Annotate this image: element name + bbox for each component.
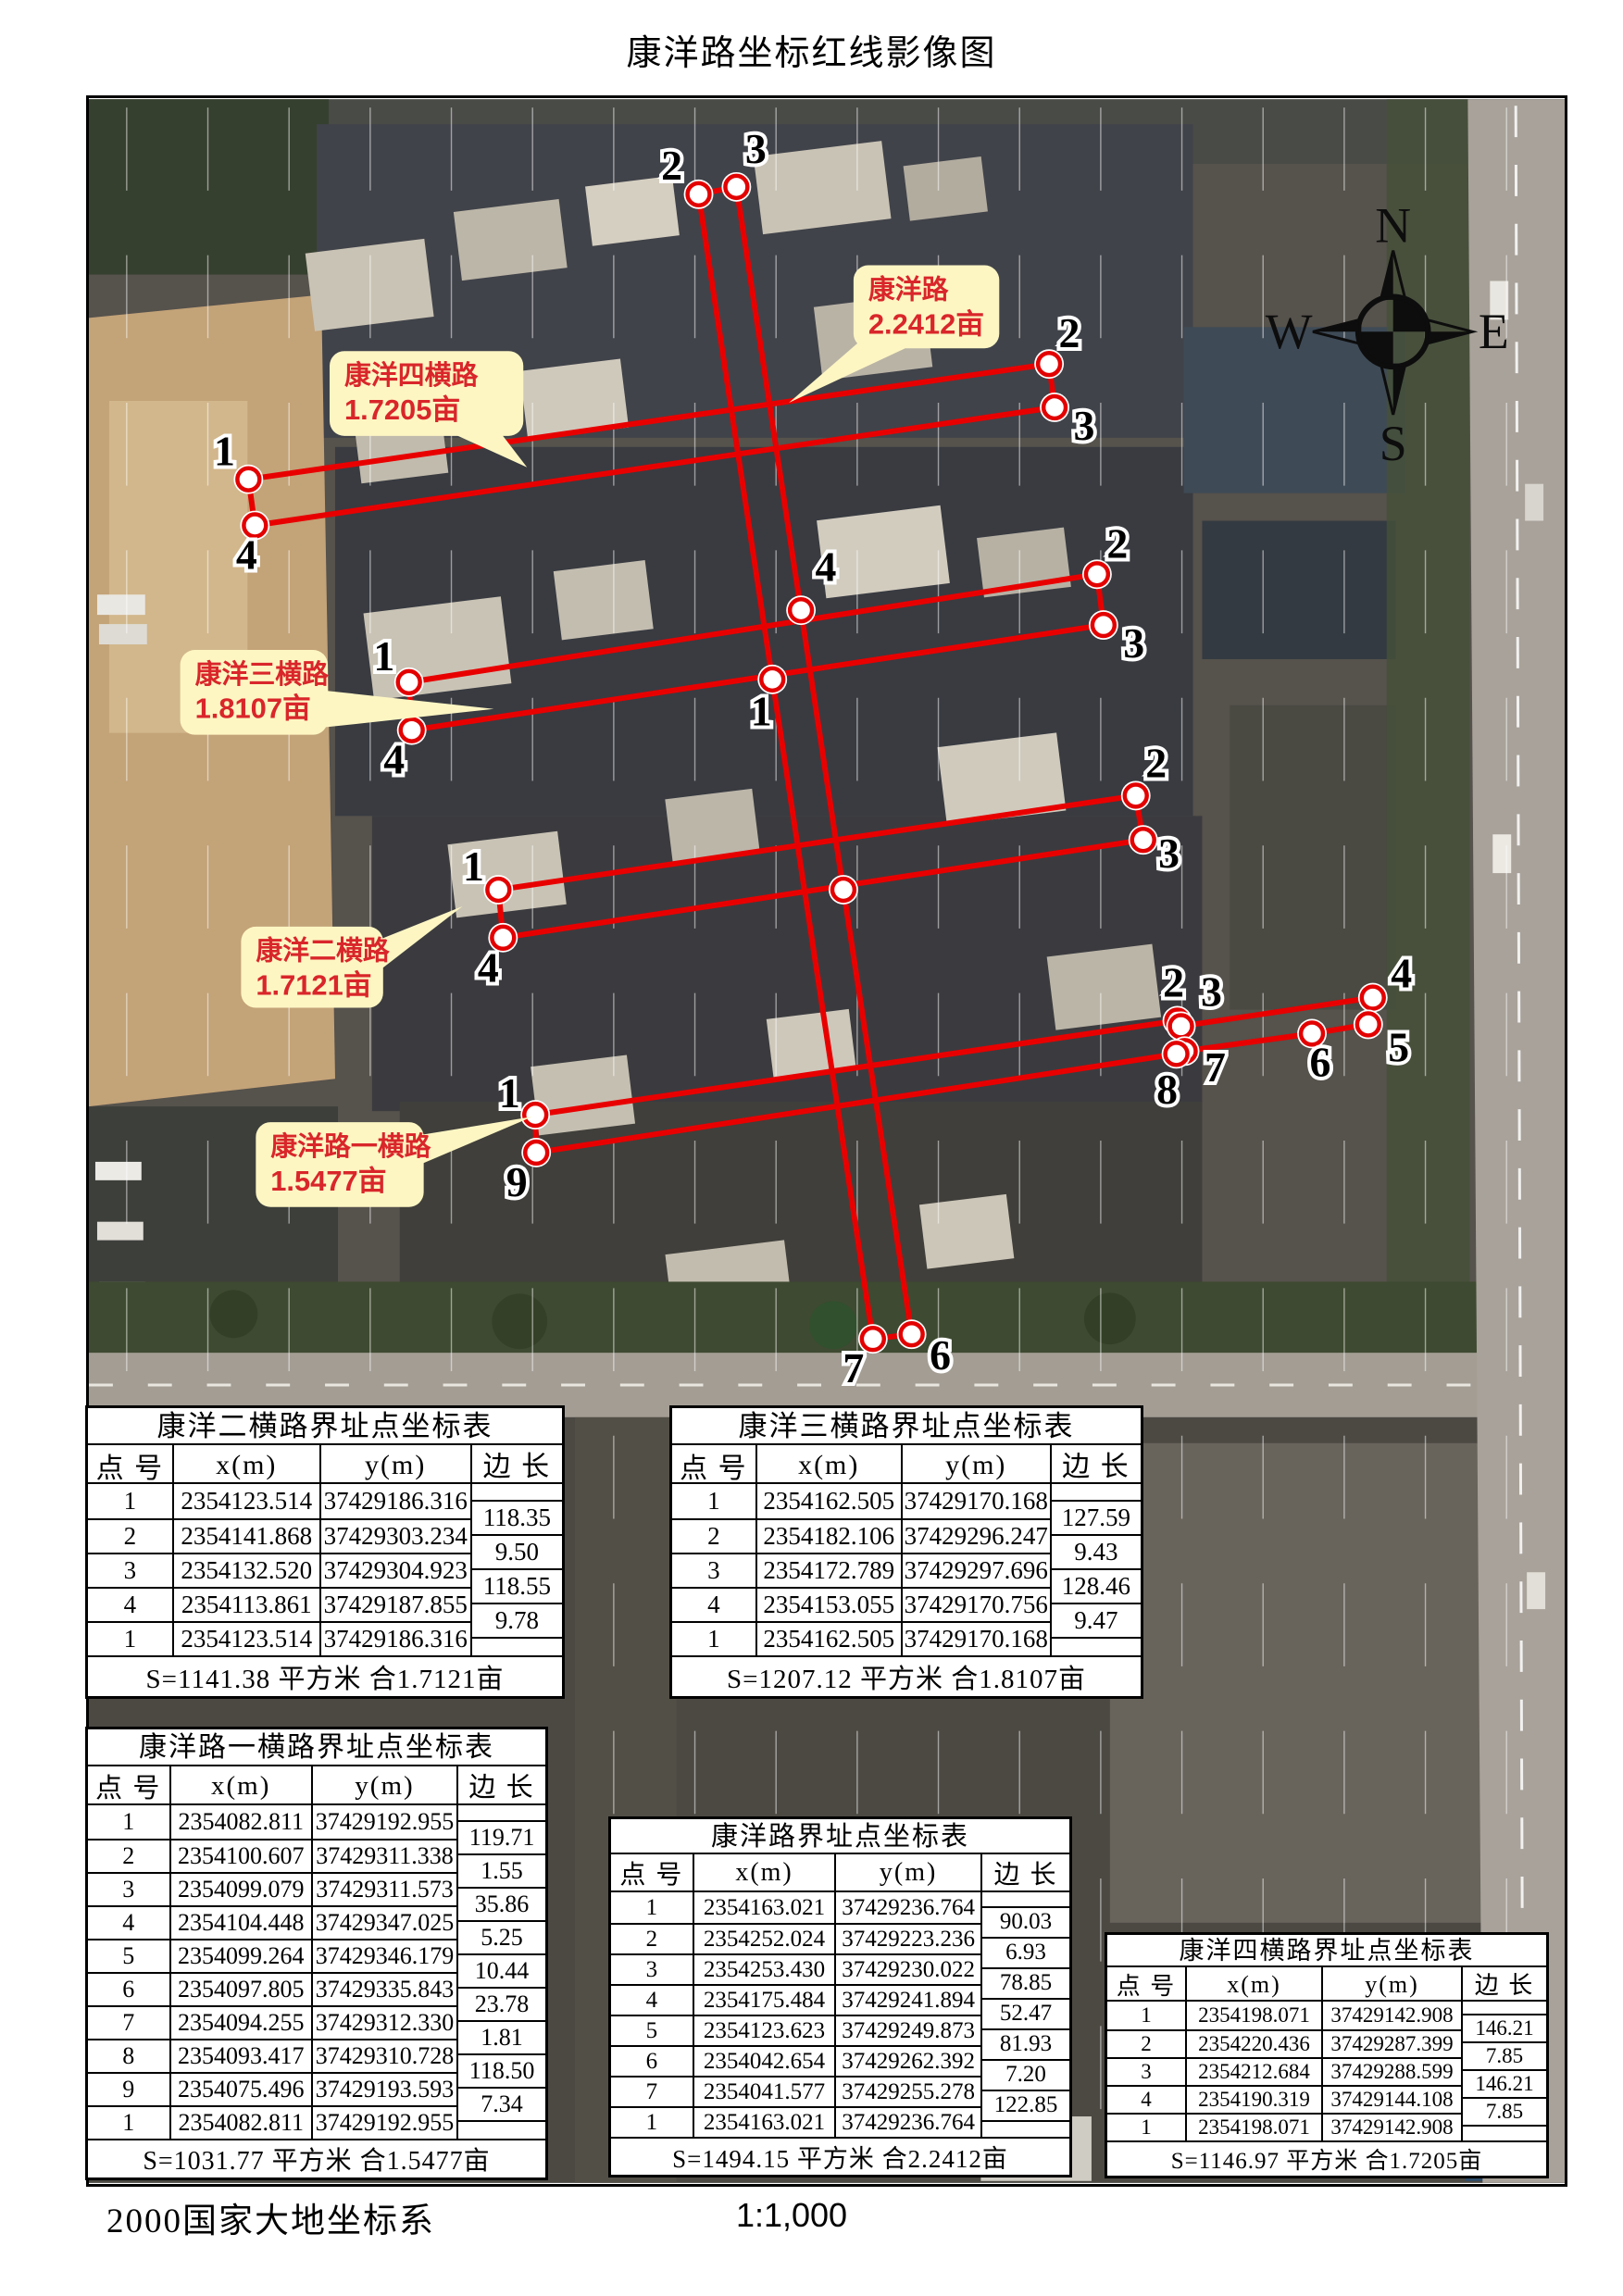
edge-length-cell: 9.50: [472, 1536, 562, 1570]
point-no-cell: 1: [672, 1621, 755, 1655]
x-coordinate-cell: 2354252.024: [693, 1923, 835, 1953]
x-coordinate-cell: 2354198.071: [1185, 2002, 1321, 2029]
road-callout-area: 1.7121亩: [256, 969, 371, 1002]
x-coordinate-cell: 2354182.106: [755, 1518, 901, 1553]
table-kangyang-siheng: 康洋四横路界址点坐标表 点 号x(m)y(m)12354198.07137429…: [1105, 1932, 1549, 2178]
column-header: x(m): [172, 1445, 319, 1486]
x-coordinate-cell: 2354153.055: [755, 1587, 901, 1621]
y-coordinate-cell: 37429192.955: [311, 1805, 456, 1839]
point-no-cell: 4: [88, 1905, 169, 1939]
column-header: y(m): [901, 1445, 1050, 1486]
point-no-cell: 6: [88, 1972, 169, 2005]
point-number-label: 1: [373, 632, 394, 680]
edge-length-cell: 118.55: [472, 1570, 562, 1604]
column-header: x(m): [1185, 1967, 1321, 2002]
x-coordinate-cell: 2354190.319: [1185, 2085, 1321, 2113]
column-header: 点 号: [1107, 1967, 1185, 2002]
boundary-point-marker: [1166, 1042, 1188, 1065]
boundary-point-marker: [1038, 353, 1060, 375]
point-no-cell: 1: [88, 1805, 169, 1839]
edge-length-cell: 122.85: [982, 2091, 1069, 2122]
x-coordinate-cell: 2354099.079: [169, 1872, 311, 1905]
point-no-cell: 2: [88, 1839, 169, 1872]
column-header: y(m): [319, 1445, 470, 1486]
point-no-cell: 1: [88, 2105, 169, 2139]
point-no-cell: 3: [672, 1553, 755, 1587]
x-coordinate-cell: 2354123.623: [693, 2015, 835, 2045]
edge-spacer: [1052, 1484, 1141, 1502]
boundary-point-marker: [1362, 987, 1384, 1009]
point-number-label: 7: [843, 1344, 864, 1391]
boundary-point-marker: [487, 879, 509, 901]
y-coordinate-cell: 37429186.316: [319, 1621, 470, 1655]
y-coordinate-cell: 37429230.022: [834, 1953, 980, 1984]
edge-spacer: [1463, 2127, 1546, 2140]
point-no-cell: 5: [88, 1939, 169, 1972]
point-number-label: 3: [1201, 968, 1222, 1016]
x-coordinate-cell: 2354253.430: [693, 1953, 835, 1984]
boundary-point-marker: [1170, 1016, 1192, 1038]
edge-length-cell: 119.71: [458, 1822, 545, 1855]
x-coordinate-cell: 2354100.607: [169, 1839, 311, 1872]
edge-length-cell: 78.85: [982, 1969, 1069, 2000]
point-no-cell: 3: [88, 1872, 169, 1905]
boundary-point-marker: [862, 1328, 884, 1350]
y-coordinate-cell: 37429170.168: [901, 1621, 1050, 1655]
y-coordinate-cell: 37429144.108: [1321, 2085, 1461, 2113]
column-header: 点 号: [88, 1445, 172, 1486]
boundary-point-marker: [398, 671, 420, 693]
point-no-cell: 1: [611, 1892, 693, 1923]
table-kangyang-lu: 康洋路界址点坐标表 点 号x(m)y(m)12354163.0213742923…: [608, 1816, 1072, 2177]
point-number-label: 1: [214, 428, 235, 475]
point-no-cell: 4: [672, 1587, 755, 1621]
point-no-cell: 3: [88, 1553, 172, 1587]
x-coordinate-cell: 2354123.514: [172, 1484, 319, 1518]
x-coordinate-cell: 2354132.520: [172, 1553, 319, 1587]
y-coordinate-cell: 37429311.338: [311, 1839, 456, 1872]
point-no-cell: 2: [1107, 2029, 1185, 2057]
road-callout-area: 1.8107亩: [195, 693, 311, 725]
point-number-label: 3: [1123, 619, 1144, 667]
x-coordinate-cell: 2354075.496: [169, 2072, 311, 2105]
road-callout-name: 康洋四横路: [344, 360, 479, 391]
column-header: x(m): [169, 1766, 311, 1805]
point-no-cell: 1: [611, 2106, 693, 2137]
road-callout-name: 康洋三横路: [195, 659, 330, 690]
map-scale-label: 1:1,000: [713, 2196, 870, 2235]
column-header-edge: 边 长: [1052, 1445, 1141, 1484]
compass-east-label: E: [1479, 304, 1509, 359]
y-coordinate-cell: 37429335.843: [311, 1972, 456, 2005]
edge-length-cell: 10.44: [458, 1955, 545, 1989]
point-no-cell: 7: [88, 2005, 169, 2039]
road-callout-area: 2.2412亩: [868, 307, 984, 340]
road-callout-area: 1.5477亩: [270, 1165, 386, 1197]
table-title: 康洋四横路界址点坐标表: [1107, 1935, 1546, 1967]
boundary-point-marker: [790, 599, 812, 621]
y-coordinate-cell: 37429249.873: [834, 2015, 980, 2045]
edge-spacer: [472, 1484, 562, 1502]
edge-length-cell: 6.93: [982, 1939, 1069, 1969]
edge-length-cell: 146.21: [1463, 2071, 1546, 2099]
y-coordinate-cell: 37429236.764: [834, 2106, 980, 2137]
column-header: x(m): [755, 1445, 901, 1486]
y-coordinate-cell: 37429193.593: [311, 2072, 456, 2105]
column-header: 点 号: [672, 1445, 755, 1486]
table-kangyang-yiheng: 康洋路一横路界址点坐标表 点 号x(m)y(m)12354082.8113742…: [85, 1727, 548, 2180]
table-title: 康洋二横路界址点坐标表: [88, 1408, 562, 1445]
boundary-point-marker: [1043, 396, 1066, 418]
y-coordinate-cell: 37429346.179: [311, 1939, 456, 1972]
point-no-cell: 1: [1107, 2002, 1185, 2029]
edge-length-cell: 5.25: [458, 1922, 545, 1955]
point-number-label: 6: [930, 1331, 951, 1379]
edge-length-cell: 146.21: [1463, 2015, 1546, 2043]
x-coordinate-cell: 2354141.868: [172, 1518, 319, 1553]
edge-length-cell: 128.46: [1052, 1570, 1141, 1604]
y-coordinate-cell: 37429288.599: [1321, 2057, 1461, 2085]
column-header-edge: 边 长: [982, 1854, 1069, 1892]
point-number-label: 6: [1310, 1038, 1331, 1085]
edge-length-cell: 7.20: [982, 2061, 1069, 2091]
point-number-label: 4: [478, 944, 499, 992]
y-coordinate-cell: 37429287.399: [1321, 2029, 1461, 2057]
y-coordinate-cell: 37429296.247: [901, 1518, 1050, 1553]
table-summary: S=1141.38 平方米 合1.7121亩: [88, 1655, 562, 1696]
y-coordinate-cell: 37429192.955: [311, 2105, 456, 2139]
edge-length-cell: 81.93: [982, 2030, 1069, 2061]
table-summary: S=1494.15 平方米 合2.2412亩: [611, 2137, 1069, 2175]
edge-spacer: [982, 2122, 1069, 2138]
edge-length-cell: 7.85: [1463, 2099, 1546, 2127]
x-coordinate-cell: 2354094.255: [169, 2005, 311, 2039]
road-callout-name: 康洋路一横路: [270, 1131, 431, 1162]
edge-length-cell: 7.34: [458, 2089, 545, 2122]
edge-spacer: [982, 1892, 1069, 1908]
table-title: 康洋路界址点坐标表: [611, 1819, 1069, 1854]
coordinate-datum-label: 2000国家大地坐标系: [106, 2192, 435, 2242]
edge-length-cell: 35.86: [458, 1889, 545, 1922]
boundary-point-marker: [1092, 614, 1115, 636]
point-number-label: 4: [236, 530, 257, 578]
column-header-edge: 边 长: [1463, 1967, 1546, 2002]
edge-length-cell: 1.81: [458, 2022, 545, 2055]
boundary-point-marker: [237, 468, 259, 491]
x-coordinate-cell: 2354104.448: [169, 1905, 311, 1939]
column-header-edge: 边 长: [472, 1445, 562, 1484]
table-title: 康洋路一横路界址点坐标表: [88, 1729, 545, 1766]
point-number-label: 2: [1106, 519, 1128, 567]
point-no-cell: 9: [88, 2072, 169, 2105]
y-coordinate-cell: 37429262.392: [834, 2045, 980, 2076]
x-coordinate-cell: 2354163.021: [693, 1892, 835, 1923]
point-no-cell: 1: [88, 1621, 172, 1655]
table-kangyang-sanheng: 康洋三横路界址点坐标表 点 号x(m)y(m)12354162.50537429…: [669, 1405, 1143, 1699]
boundary-point-marker: [1357, 1014, 1380, 1036]
x-coordinate-cell: 2354175.484: [693, 1984, 835, 2015]
point-no-cell: 3: [611, 1953, 693, 1984]
edge-spacer: [1052, 1639, 1141, 1656]
x-coordinate-cell: 2354113.861: [172, 1587, 319, 1621]
column-header: y(m): [1321, 1967, 1461, 2002]
edge-length-cell: 9.43: [1052, 1536, 1141, 1570]
x-coordinate-cell: 2354042.654: [693, 2045, 835, 2076]
boundary-point-marker: [688, 183, 710, 206]
x-coordinate-cell: 2354212.684: [1185, 2057, 1321, 2085]
point-no-cell: 3: [1107, 2057, 1185, 2085]
y-coordinate-cell: 37429303.234: [319, 1518, 470, 1553]
survey-sheet: 康洋路坐标红线影像图: [0, 0, 1623, 2296]
column-header: y(m): [311, 1766, 456, 1805]
y-coordinate-cell: 37429236.764: [834, 1892, 980, 1923]
point-no-cell: 2: [88, 1518, 172, 1553]
table-summary: S=1207.12 平方米 合1.8107亩: [672, 1655, 1141, 1696]
point-no-cell: 6: [611, 2045, 693, 2076]
y-coordinate-cell: 37429297.696: [901, 1553, 1050, 1587]
edge-length-cell: 52.47: [982, 2000, 1069, 2030]
x-coordinate-cell: 2354172.789: [755, 1553, 901, 1587]
table-kangyang-erheng: 康洋二横路界址点坐标表 点 号x(m)y(m)12354123.51437429…: [85, 1405, 565, 1699]
compass-south-label: S: [1380, 416, 1407, 471]
column-header: y(m): [834, 1854, 980, 1891]
road-callout-name: 康洋二横路: [256, 936, 390, 967]
edge-spacer: [458, 2122, 545, 2139]
table-summary: S=1146.97 平方米 合1.7205亩: [1107, 2140, 1546, 2176]
x-coordinate-cell: 2354220.436: [1185, 2029, 1321, 2057]
point-no-cell: 1: [672, 1484, 755, 1518]
point-number-label: 9: [506, 1158, 528, 1205]
point-no-cell: 1: [1107, 2113, 1185, 2140]
boundary-point-marker: [1132, 829, 1155, 851]
point-number-label: 3: [1074, 402, 1095, 449]
x-coordinate-cell: 2354123.514: [172, 1621, 319, 1655]
boundary-point-marker: [524, 1104, 546, 1126]
point-no-cell: 1: [88, 1484, 172, 1518]
point-no-cell: 4: [611, 1984, 693, 2015]
point-number-label: 4: [383, 735, 405, 782]
point-no-cell: 7: [611, 2076, 693, 2106]
y-coordinate-cell: 37429170.756: [901, 1587, 1050, 1621]
y-coordinate-cell: 37429187.855: [319, 1587, 470, 1621]
point-number-label: 5: [1388, 1023, 1409, 1070]
road-callout-area: 1.7205亩: [344, 393, 460, 426]
point-number-label: 4: [1391, 950, 1412, 997]
point-number-label: 3: [1158, 830, 1180, 877]
y-coordinate-cell: 37429304.923: [319, 1553, 470, 1587]
y-coordinate-cell: 37429311.573: [311, 1872, 456, 1905]
x-coordinate-cell: 2354162.505: [755, 1484, 901, 1518]
point-no-cell: 2: [672, 1518, 755, 1553]
boundary-point-marker: [725, 176, 747, 198]
edge-spacer: [472, 1639, 562, 1656]
x-coordinate-cell: 2354097.805: [169, 1972, 311, 2005]
x-coordinate-cell: 2354093.417: [169, 2039, 311, 2072]
point-number-label: 8: [1156, 1066, 1178, 1113]
y-coordinate-cell: 37429223.236: [834, 1923, 980, 1953]
boundary-point-marker: [901, 1323, 923, 1345]
point-number-label: 3: [745, 125, 767, 172]
point-no-cell: 4: [88, 1587, 172, 1621]
edge-spacer: [1463, 2002, 1546, 2015]
point-number-label: 4: [816, 543, 837, 590]
y-coordinate-cell: 37429312.330: [311, 2005, 456, 2039]
y-coordinate-cell: 37429241.894: [834, 1984, 980, 2015]
x-coordinate-cell: 2354198.071: [1185, 2113, 1321, 2140]
point-number-label: 2: [1145, 739, 1167, 786]
point-number-label: 2: [1059, 309, 1080, 356]
compass-west-label: W: [1266, 304, 1313, 359]
x-coordinate-cell: 2354082.811: [169, 1805, 311, 1839]
y-coordinate-cell: 37429170.168: [901, 1484, 1050, 1518]
boundary-point-marker: [1125, 784, 1147, 806]
x-coordinate-cell: 2354163.021: [693, 2106, 835, 2137]
boundary-point-marker: [525, 1142, 547, 1164]
edge-length-cell: 118.35: [472, 1502, 562, 1536]
boundary-point-marker: [832, 879, 855, 901]
x-coordinate-cell: 2354082.811: [169, 2105, 311, 2139]
column-header: 点 号: [611, 1854, 693, 1891]
y-coordinate-cell: 37429310.728: [311, 2039, 456, 2072]
y-coordinate-cell: 37429347.025: [311, 1905, 456, 1939]
boundary-point-marker: [1086, 563, 1108, 585]
x-coordinate-cell: 2354099.264: [169, 1939, 311, 1972]
point-no-cell: 8: [88, 2039, 169, 2072]
road-callout-name: 康洋路: [868, 274, 949, 305]
x-coordinate-cell: 2354162.505: [755, 1621, 901, 1655]
y-coordinate-cell: 37429142.908: [1321, 2002, 1461, 2029]
point-number-label: 1: [463, 842, 484, 890]
edge-spacer: [458, 1805, 545, 1822]
edge-length-cell: 127.59: [1052, 1502, 1141, 1536]
compass-north-label: N: [1375, 198, 1411, 254]
page-title: 康洋路坐标红线影像图: [0, 24, 1623, 75]
table-summary: S=1031.77 平方米 合1.5477亩: [88, 2139, 545, 2177]
point-no-cell: 2: [611, 1923, 693, 1953]
point-no-cell: 4: [1107, 2085, 1185, 2113]
point-number-label: 1: [751, 688, 772, 735]
edge-length-cell: 9.47: [1052, 1604, 1141, 1639]
y-coordinate-cell: 37429255.278: [834, 2076, 980, 2106]
column-header: x(m): [693, 1854, 835, 1891]
x-coordinate-cell: 2354041.577: [693, 2076, 835, 2106]
edge-length-cell: 90.03: [982, 1908, 1069, 1939]
y-coordinate-cell: 37429142.908: [1321, 2113, 1461, 2140]
point-number-label: 7: [1205, 1043, 1226, 1091]
column-header-edge: 边 长: [458, 1766, 545, 1805]
edge-length-cell: 23.78: [458, 1989, 545, 2022]
y-coordinate-cell: 37429186.316: [319, 1484, 470, 1518]
point-number-label: 1: [499, 1069, 520, 1117]
point-no-cell: 5: [611, 2015, 693, 2045]
edge-length-cell: 1.55: [458, 1855, 545, 1889]
edge-length-cell: 7.85: [1463, 2043, 1546, 2071]
point-number-label: 2: [1163, 959, 1184, 1006]
column-header: 点 号: [88, 1766, 169, 1805]
point-number-label: 2: [661, 142, 682, 189]
edge-length-cell: 118.50: [458, 2055, 545, 2089]
edge-length-cell: 9.78: [472, 1604, 562, 1639]
table-title: 康洋三横路界址点坐标表: [672, 1408, 1141, 1445]
